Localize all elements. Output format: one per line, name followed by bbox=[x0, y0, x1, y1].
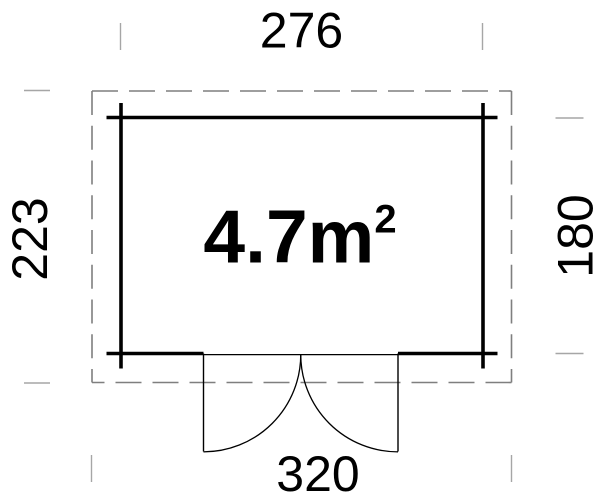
svg-text:276: 276 bbox=[260, 3, 343, 59]
svg-text:223: 223 bbox=[2, 197, 58, 280]
svg-text:4.7m2: 4.7m2 bbox=[203, 195, 396, 279]
svg-text:320: 320 bbox=[276, 446, 359, 500]
svg-text:180: 180 bbox=[547, 194, 601, 277]
